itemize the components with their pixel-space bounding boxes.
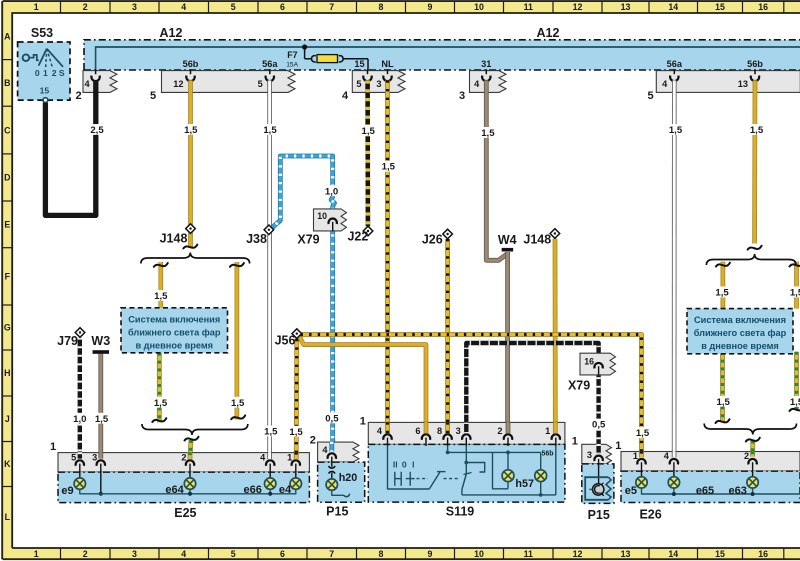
svg-text:E26: E26 (639, 508, 661, 522)
svg-text:4: 4 (474, 79, 480, 89)
svg-text:10: 10 (317, 211, 327, 221)
svg-text:e65: e65 (696, 485, 714, 497)
svg-text:1,0: 1,0 (73, 414, 86, 425)
svg-text:4: 4 (342, 90, 349, 102)
svg-text:56b: 56b (183, 59, 199, 69)
svg-text:56b: 56b (541, 450, 553, 457)
svg-text:1,5: 1,5 (382, 162, 396, 173)
svg-text:H: H (4, 368, 10, 378)
svg-text:S: S (59, 68, 65, 78)
svg-text:11: 11 (524, 2, 533, 12)
svg-text:1,5: 1,5 (263, 125, 277, 136)
svg-text:4: 4 (322, 445, 328, 455)
svg-text:J56: J56 (275, 334, 296, 348)
svg-text:A12: A12 (537, 26, 560, 40)
svg-text:14: 14 (668, 549, 678, 559)
svg-text:в дневное время: в дневное время (135, 340, 213, 350)
svg-text:1,5: 1,5 (790, 288, 800, 299)
svg-text:8: 8 (379, 549, 384, 559)
svg-text:10: 10 (474, 2, 484, 12)
svg-text:5: 5 (356, 79, 361, 89)
svg-text:3: 3 (587, 450, 592, 460)
svg-text:15: 15 (715, 549, 725, 559)
svg-text:X79: X79 (297, 233, 319, 247)
svg-text:B: B (4, 78, 10, 88)
svg-text:3: 3 (92, 453, 97, 463)
svg-text:5: 5 (150, 90, 156, 102)
svg-text:4: 4 (377, 426, 383, 436)
svg-text:1: 1 (50, 441, 56, 453)
svg-text:II: II (393, 459, 398, 469)
svg-text:0: 0 (35, 68, 40, 78)
svg-text:56a: 56a (262, 59, 278, 69)
svg-text:X79: X79 (568, 379, 590, 393)
svg-text:1,5: 1,5 (717, 397, 731, 408)
svg-text:15: 15 (354, 59, 364, 69)
svg-text:e63: e63 (729, 485, 747, 497)
svg-text:3: 3 (456, 426, 461, 436)
svg-text:e9: e9 (61, 485, 73, 497)
svg-text:3: 3 (132, 2, 137, 12)
svg-text:L: L (5, 512, 11, 522)
svg-text:1: 1 (615, 440, 621, 452)
svg-text:4: 4 (260, 453, 266, 463)
svg-text:1,5: 1,5 (264, 427, 278, 438)
svg-text:4: 4 (181, 549, 186, 559)
svg-text:12: 12 (573, 2, 583, 12)
svg-text:1,5: 1,5 (184, 125, 198, 136)
svg-text:14: 14 (668, 2, 678, 12)
svg-text:E: E (4, 220, 10, 230)
svg-text:13: 13 (738, 79, 748, 89)
svg-text:P15: P15 (326, 505, 348, 519)
svg-text:D: D (4, 173, 10, 183)
svg-text:1,5: 1,5 (154, 398, 168, 409)
svg-text:J22: J22 (347, 229, 368, 243)
svg-text:16: 16 (584, 357, 594, 367)
svg-text:1: 1 (34, 549, 39, 559)
svg-text:1,5: 1,5 (231, 398, 245, 409)
svg-text:1: 1 (545, 426, 550, 436)
svg-text:W4: W4 (498, 233, 517, 247)
svg-text:15: 15 (40, 85, 50, 95)
svg-text:E25: E25 (174, 506, 196, 520)
svg-text:16: 16 (758, 549, 768, 559)
svg-text:6: 6 (280, 549, 285, 559)
svg-text:NL: NL (381, 59, 394, 69)
svg-text:2: 2 (744, 451, 749, 461)
svg-text:S119: S119 (446, 505, 475, 519)
svg-text:e64: e64 (165, 484, 184, 496)
svg-text:A: A (4, 31, 11, 41)
svg-text:J79: J79 (57, 334, 78, 348)
svg-text:12: 12 (573, 549, 583, 559)
svg-text:1,5: 1,5 (750, 125, 764, 136)
svg-text:K: K (4, 459, 11, 469)
svg-text:e66: e66 (244, 484, 262, 496)
svg-text:6: 6 (415, 426, 420, 436)
svg-text:3: 3 (459, 90, 465, 102)
svg-text:h20: h20 (339, 472, 358, 484)
svg-text:3: 3 (376, 79, 381, 89)
svg-text:Система включения: Система включения (694, 315, 786, 325)
svg-text:0: 0 (402, 459, 407, 469)
svg-text:3: 3 (132, 549, 137, 559)
svg-text:1: 1 (34, 2, 39, 12)
svg-text:1,5: 1,5 (154, 291, 168, 302)
svg-text:1,0: 1,0 (325, 186, 338, 197)
svg-text:0,5: 0,5 (592, 420, 606, 431)
svg-text:5: 5 (258, 79, 263, 89)
svg-text:6: 6 (280, 2, 285, 12)
svg-text:13: 13 (621, 549, 631, 559)
svg-text:12: 12 (173, 79, 183, 89)
svg-text:2: 2 (83, 2, 88, 12)
svg-text:9: 9 (428, 549, 433, 559)
svg-text:8: 8 (379, 2, 384, 12)
svg-text:56b: 56b (747, 59, 763, 69)
svg-text:13: 13 (621, 2, 631, 12)
svg-text:1,5: 1,5 (362, 126, 376, 137)
svg-text:2: 2 (52, 68, 57, 78)
svg-text:1,5: 1,5 (636, 428, 650, 439)
svg-text:31: 31 (481, 59, 491, 69)
svg-text:1: 1 (43, 68, 48, 78)
svg-text:5: 5 (647, 90, 653, 102)
svg-text:2: 2 (497, 426, 502, 436)
svg-text:J: J (5, 414, 10, 424)
svg-text:1,5: 1,5 (289, 427, 303, 438)
svg-text:F: F (5, 272, 11, 282)
svg-text:F7: F7 (287, 50, 297, 60)
svg-text:1,5: 1,5 (95, 414, 109, 425)
svg-text:J148: J148 (160, 232, 188, 246)
svg-text:P15: P15 (588, 508, 610, 522)
svg-text:16: 16 (758, 2, 768, 12)
svg-text:9: 9 (428, 2, 433, 12)
svg-text:2: 2 (75, 90, 81, 102)
svg-text:Система включения: Система включения (128, 314, 220, 324)
svg-text:2: 2 (181, 453, 186, 463)
svg-text:2: 2 (83, 549, 88, 559)
svg-text:4: 4 (181, 2, 186, 12)
svg-text:ближнего света фар: ближнего света фар (694, 328, 787, 338)
svg-text:J38: J38 (246, 232, 267, 246)
svg-text:ближнего света фар: ближнего света фар (128, 327, 221, 337)
svg-text:1: 1 (287, 453, 292, 463)
svg-text:I: I (412, 459, 414, 469)
svg-text:1,5: 1,5 (715, 288, 729, 299)
svg-text:S53: S53 (31, 26, 53, 40)
svg-text:11: 11 (524, 549, 533, 559)
svg-text:7: 7 (329, 549, 334, 559)
svg-text:G: G (4, 323, 11, 333)
svg-text:10: 10 (474, 549, 484, 559)
svg-text:e5: e5 (625, 485, 637, 497)
svg-text:5: 5 (231, 549, 236, 559)
svg-text:e4: e4 (279, 484, 292, 496)
svg-text:1,5: 1,5 (669, 125, 683, 136)
svg-text:56a: 56a (667, 59, 683, 69)
svg-text:1,5: 1,5 (481, 128, 495, 139)
svg-text:h57: h57 (515, 478, 534, 490)
svg-text:15A: 15A (286, 61, 298, 68)
svg-text:в дневное время: в дневное время (701, 341, 779, 351)
svg-text:0,5: 0,5 (325, 413, 339, 424)
svg-text:1: 1 (633, 451, 638, 461)
svg-text:8: 8 (437, 426, 442, 436)
svg-text:4: 4 (84, 79, 90, 89)
svg-text:1: 1 (360, 416, 366, 428)
svg-text:A12: A12 (160, 26, 183, 40)
svg-text:2: 2 (310, 435, 316, 447)
svg-text:4: 4 (664, 451, 670, 461)
svg-text:2,5: 2,5 (90, 125, 104, 136)
svg-text:15: 15 (715, 2, 725, 12)
svg-text:1,5: 1,5 (790, 397, 800, 408)
svg-text:1: 1 (572, 435, 578, 447)
svg-text:7: 7 (329, 2, 334, 12)
svg-text:5: 5 (231, 2, 236, 12)
svg-text:5: 5 (71, 453, 76, 463)
svg-text:J148: J148 (523, 232, 551, 246)
svg-text:4: 4 (662, 79, 668, 89)
svg-text:C: C (4, 125, 11, 135)
svg-text:W3: W3 (91, 334, 110, 348)
svg-text:J26: J26 (422, 232, 443, 246)
